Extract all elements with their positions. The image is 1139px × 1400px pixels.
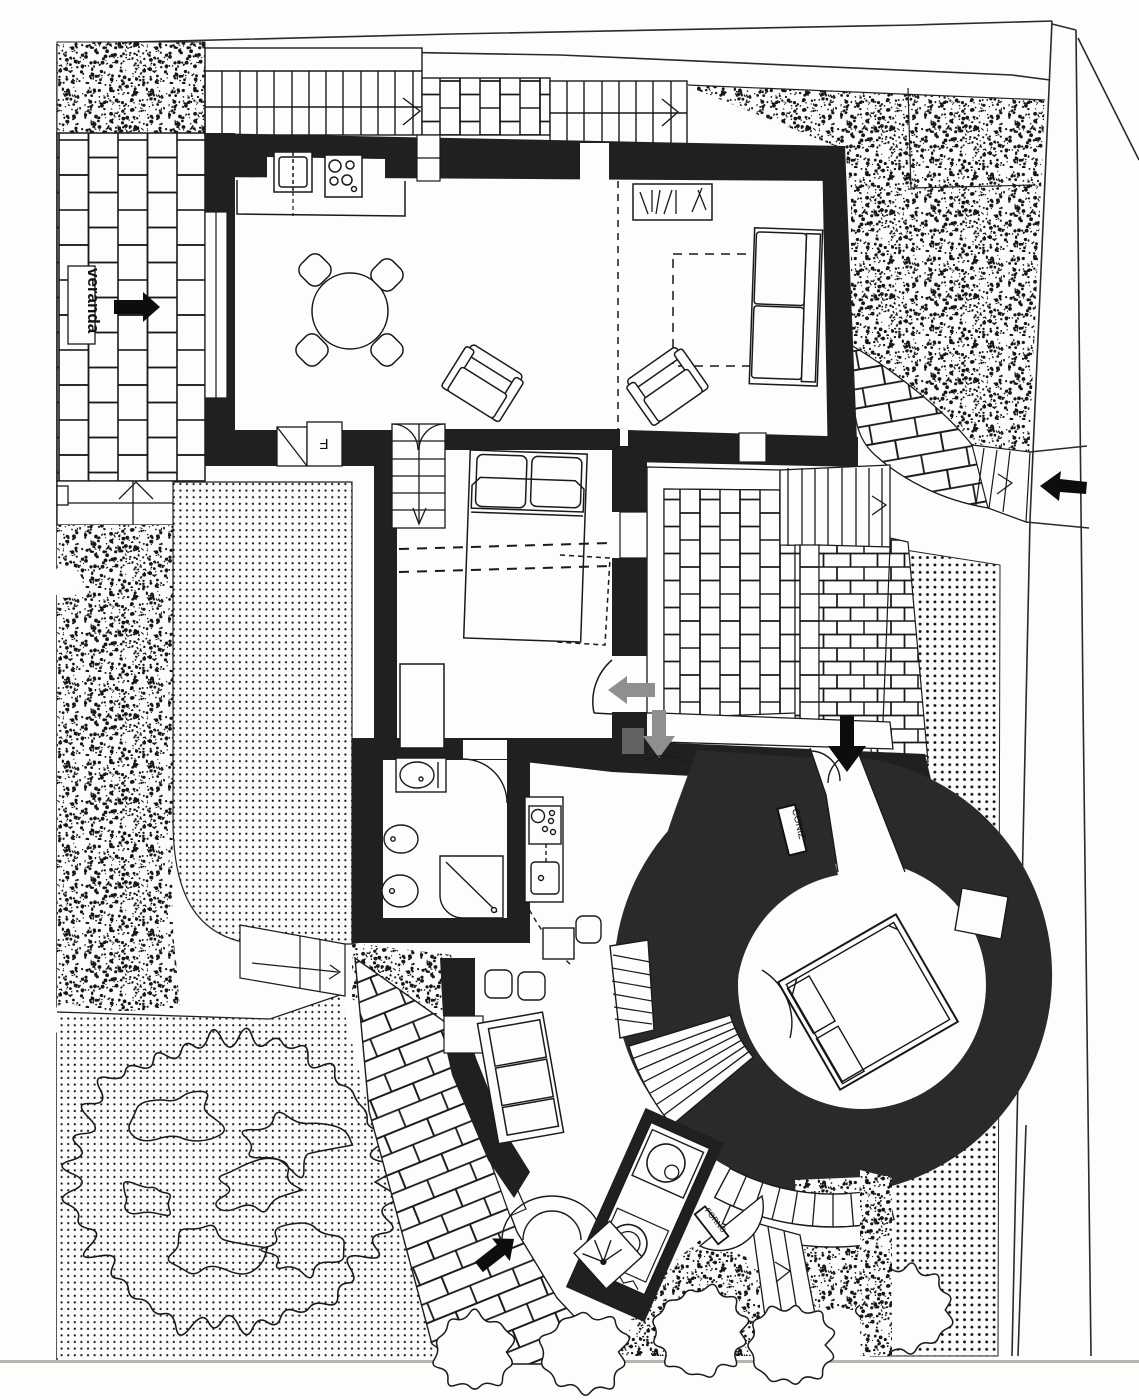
svg-text:F: F <box>319 435 328 452</box>
svg-text:veranda: veranda <box>84 268 103 334</box>
